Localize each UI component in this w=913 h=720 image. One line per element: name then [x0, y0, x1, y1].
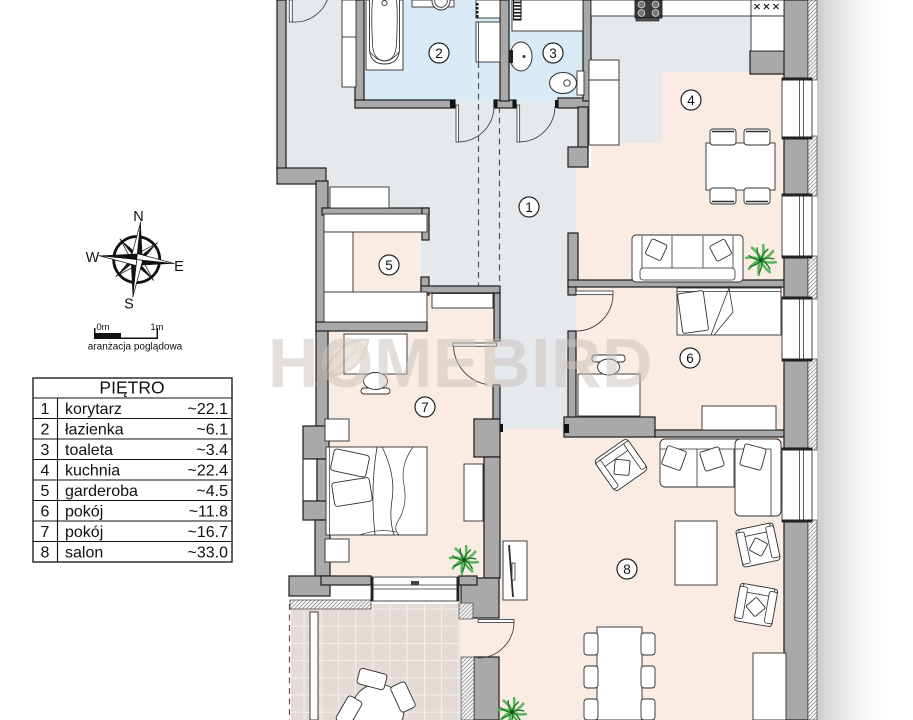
- svg-text:PIĘTRO: PIĘTRO: [99, 378, 164, 398]
- svg-text:~6.1: ~6.1: [196, 421, 228, 438]
- svg-text:5: 5: [385, 258, 393, 273]
- svg-text:1: 1: [41, 401, 50, 418]
- svg-text:6: 6: [686, 351, 694, 366]
- svg-text:~3.4: ~3.4: [196, 442, 228, 459]
- svg-text:1m: 1m: [150, 322, 163, 333]
- svg-text:5: 5: [41, 483, 50, 500]
- svg-text:garderoba: garderoba: [65, 483, 138, 500]
- svg-text:2: 2: [435, 46, 443, 61]
- svg-text:4: 4: [687, 93, 695, 108]
- svg-text:~22.4: ~22.4: [188, 462, 229, 479]
- svg-text:6: 6: [41, 503, 50, 520]
- svg-text:E: E: [174, 259, 184, 275]
- svg-text:1: 1: [525, 200, 533, 215]
- svg-text:~22.1: ~22.1: [188, 401, 229, 418]
- svg-text:łazienka: łazienka: [65, 421, 124, 438]
- svg-text:~11.8: ~11.8: [189, 503, 228, 520]
- svg-text:7: 7: [41, 524, 50, 541]
- svg-text:pokój: pokój: [65, 503, 103, 520]
- svg-text:8: 8: [41, 544, 50, 561]
- svg-text:~16.7: ~16.7: [188, 524, 229, 541]
- svg-text:3: 3: [41, 442, 50, 459]
- svg-text:W: W: [86, 250, 100, 266]
- svg-text:N: N: [133, 209, 143, 225]
- svg-text:kuchnia: kuchnia: [65, 462, 120, 479]
- svg-text:7: 7: [421, 400, 429, 415]
- svg-text:3: 3: [549, 46, 557, 61]
- svg-text:0m: 0m: [96, 322, 109, 333]
- svg-text:~4.5: ~4.5: [196, 483, 228, 500]
- svg-text:HOMEBIRD: HOMEBIRD: [268, 324, 653, 402]
- svg-text:salon: salon: [65, 544, 103, 561]
- svg-text:4: 4: [41, 462, 50, 479]
- svg-text:8: 8: [623, 562, 631, 577]
- svg-text:~33.0: ~33.0: [188, 544, 229, 561]
- svg-text:2: 2: [41, 421, 50, 438]
- svg-text:korytarz: korytarz: [65, 401, 122, 418]
- svg-text:toaleta: toaleta: [65, 442, 113, 459]
- svg-text:S: S: [124, 297, 134, 313]
- svg-text:pokój: pokój: [65, 524, 103, 541]
- svg-text:aranżacja poglądowa: aranżacja poglądowa: [88, 342, 183, 353]
